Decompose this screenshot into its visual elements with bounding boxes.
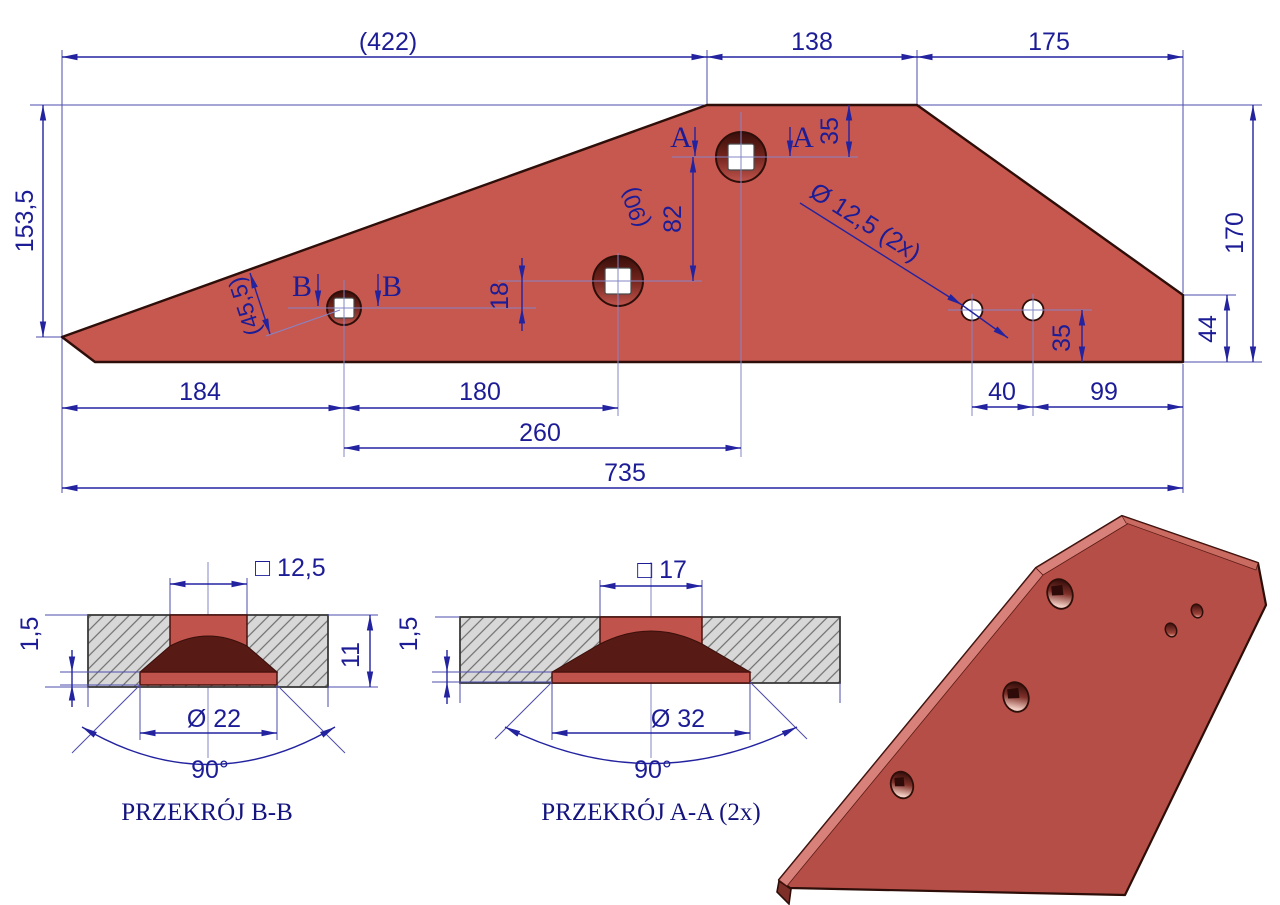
dim-180: 180 bbox=[459, 378, 501, 406]
dim-260: 260 bbox=[519, 419, 561, 447]
section-a-square-dim: □ 17 bbox=[637, 556, 687, 584]
section-a-view: □ 17 1,5 Ø 32 90° PRZEKRÓJ A-A (2x) bbox=[395, 556, 840, 826]
dim-99: 99 bbox=[1090, 378, 1118, 406]
dim-35-right: 35 bbox=[1048, 324, 1076, 352]
section-mark-b-left: B bbox=[292, 270, 312, 303]
section-b-lip-dim: 1,5 bbox=[16, 617, 44, 652]
dim-18: 18 bbox=[486, 282, 514, 310]
dim-422: (422) bbox=[359, 28, 417, 56]
dim-170: 170 bbox=[1221, 212, 1249, 254]
section-a-lip-dim: 1,5 bbox=[395, 617, 423, 652]
main-view: (422) 138 175 153,5 170 44 35 82 18 (90)… bbox=[11, 28, 1262, 493]
section-b-square-dim: □ 12,5 bbox=[255, 554, 326, 582]
section-b-view: □ 12,5 1,5 11 Ø 22 90° PRZEKRÓJ B-B bbox=[16, 554, 378, 826]
iso-3d-view bbox=[777, 516, 1266, 904]
drawing-page: (422) 138 175 153,5 170 44 35 82 18 (90)… bbox=[0, 0, 1280, 905]
dim-175: 175 bbox=[1028, 28, 1070, 56]
dim-153-5: 153,5 bbox=[11, 190, 39, 253]
section-b-collar bbox=[140, 672, 277, 685]
part-outline bbox=[62, 105, 1183, 362]
section-a-collar bbox=[552, 672, 750, 683]
section-mark-b-right: B bbox=[382, 270, 402, 303]
section-a-title: PRZEKRÓJ A-A (2x) bbox=[541, 798, 760, 826]
technical-drawing-canvas: (422) 138 175 153,5 170 44 35 82 18 (90)… bbox=[0, 0, 1280, 905]
section-b-angle-dim: 90° bbox=[191, 756, 229, 784]
section-mark-a-right: A bbox=[792, 121, 814, 154]
section-a-angle-dim: 90° bbox=[634, 756, 672, 784]
dim-35-top: 35 bbox=[816, 117, 844, 145]
dim-40: 40 bbox=[988, 378, 1016, 406]
dim-82: 82 bbox=[659, 205, 687, 233]
section-mark-a-left: A bbox=[670, 121, 692, 154]
section-b-title: PRZEKRÓJ B-B bbox=[121, 798, 293, 826]
dim-735: 735 bbox=[604, 459, 646, 487]
dim-44: 44 bbox=[1194, 315, 1222, 343]
section-b-thickness-dim: 11 bbox=[337, 642, 365, 668]
section-b-diameter-dim: Ø 22 bbox=[187, 705, 241, 733]
dim-138: 138 bbox=[791, 28, 833, 56]
section-a-diameter-dim: Ø 32 bbox=[651, 705, 705, 733]
dim-184: 184 bbox=[179, 378, 221, 406]
